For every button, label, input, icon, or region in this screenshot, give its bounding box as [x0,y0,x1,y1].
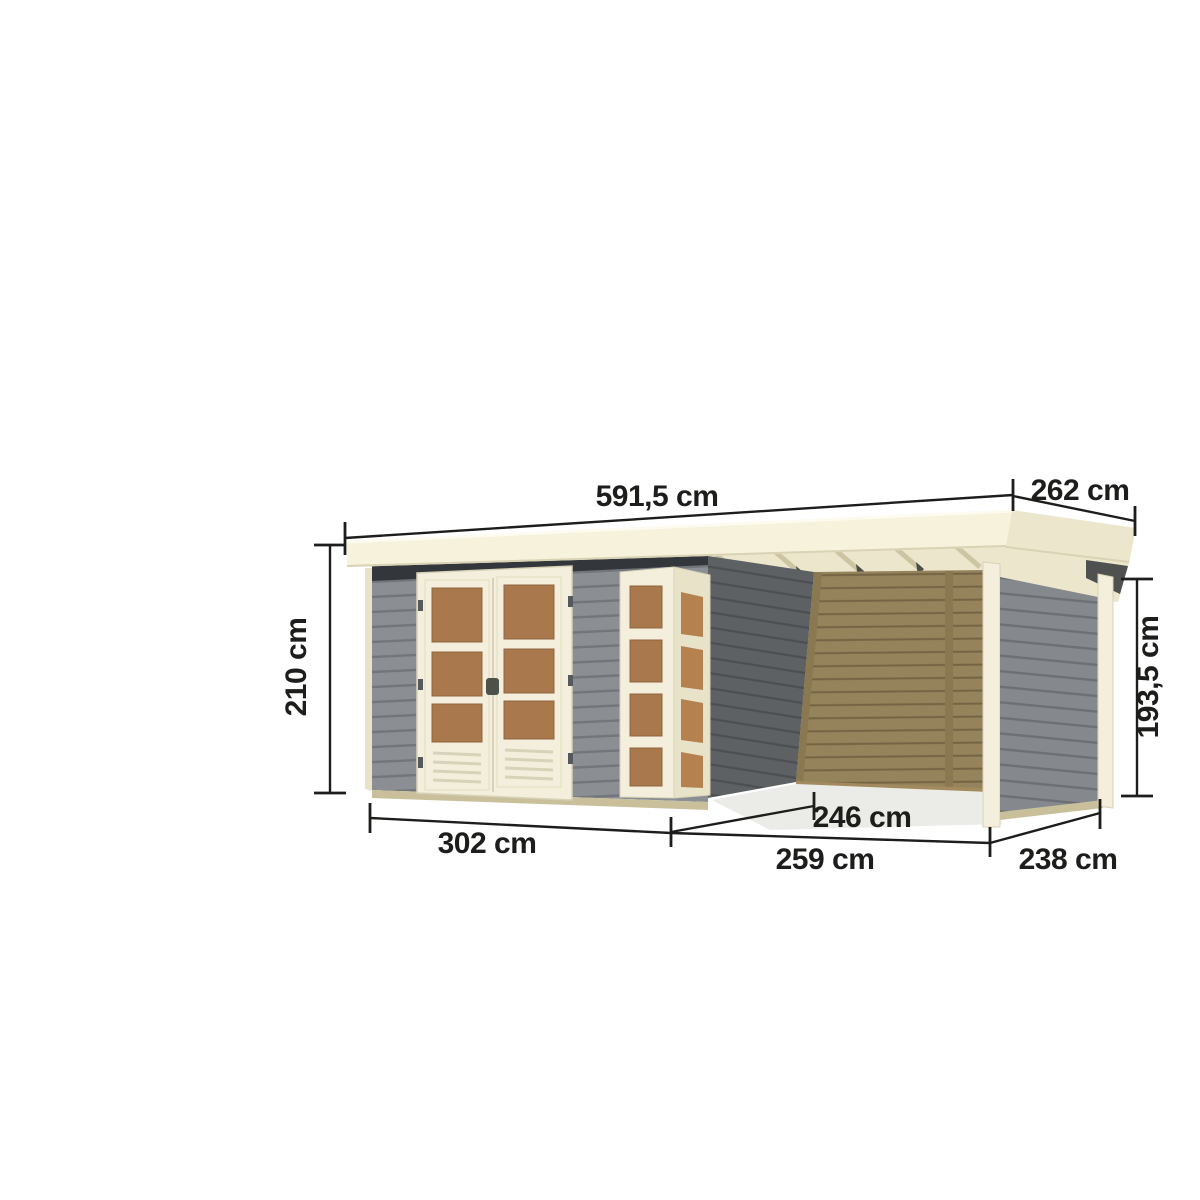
annex-back-wall-batten [945,571,953,787]
annex-back-wall-panel [796,570,985,789]
annex-back-wall [796,570,985,796]
double-door [417,566,573,800]
dim-right-depth-label: 238 cm [1019,843,1118,876]
door-handle [486,678,499,695]
dimension-right-height: 193,5 cm [1121,579,1165,796]
dimension-front-main-width: 302 cm [370,803,671,860]
dimension-left-height: 210 cm [280,545,346,793]
annex-right-wall-right-post [1098,574,1113,808]
annex-right-wall-left-post [983,562,1000,827]
dim-right-height-label: 193,5 cm [1132,616,1165,739]
dim-top-width-label: 591,5 cm [596,480,719,513]
corner-window-unit [620,567,710,798]
shed-illustration: 591,5 cm 262 cm 210 cm 193,5 cm 302 cm 2… [0,0,1200,1200]
annex-right-wall-panel [1000,577,1103,818]
dim-front-main-width-label: 302 cm [438,827,537,860]
dimension-annex-width: 259 cm [671,827,990,876]
dim-annex-width-label: 259 cm [776,843,875,876]
door-left-windows [432,588,482,742]
dim-left-height-label: 210 cm [280,618,313,717]
main-house-left-corner-trim [365,568,372,791]
product-dimension-diagram: 591,5 cm 262 cm 210 cm 193,5 cm 302 cm 2… [0,0,1200,1200]
door-right-windows [504,585,554,739]
dim-annex-depth-label: 246 cm [813,801,912,834]
annex-right-wall [983,562,1113,827]
dim-top-depth-label: 262 cm [1031,474,1130,507]
